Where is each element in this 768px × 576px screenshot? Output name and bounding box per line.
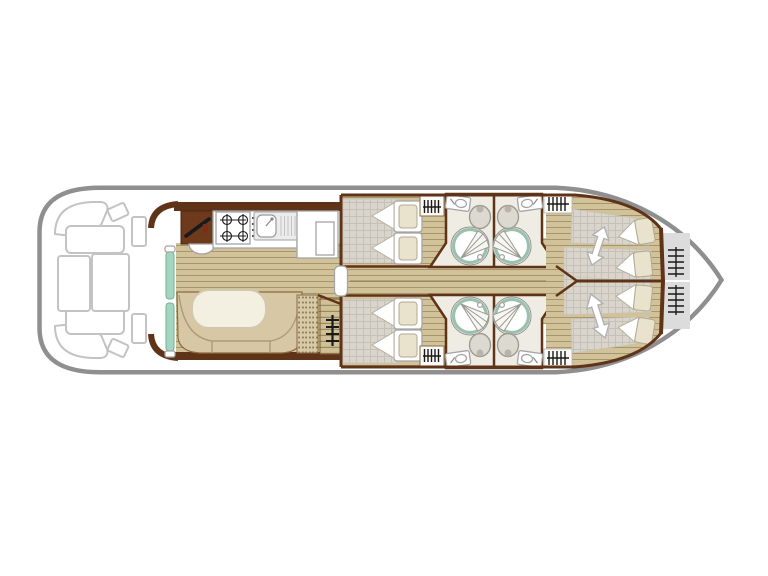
sink-icon [254,212,298,240]
dinette-table [192,290,266,328]
round-shower-icon [493,297,531,335]
helm-knob [203,224,208,233]
pillow [399,205,417,228]
round-shower-icon [451,297,489,335]
sliding-door [166,303,174,351]
pillow [399,334,417,357]
dotted-bench [297,295,318,353]
toilet-icon [498,334,519,357]
deck-bench [66,226,124,253]
bathrooms-forward-pair [430,194,558,267]
round-shower-icon [451,227,489,265]
toilet-icon [470,206,491,229]
corridor-door [335,266,348,296]
fridge-door [316,222,334,255]
door-cap [165,351,175,357]
mid-cabin-port [341,195,446,267]
side-locker [132,217,146,246]
boat-floor-plan [0,0,768,576]
washbasin-icon [517,350,543,367]
side-locker [132,314,146,343]
sun-pad [92,254,129,311]
washbasin-icon [445,350,471,367]
toilet-icon [470,334,491,357]
toilet-icon [498,206,519,229]
sun-pad [58,256,90,311]
bow-bulkhead [661,228,663,334]
washbasin-icon [517,194,543,211]
door-cap [165,246,175,252]
floor-plan-canvas [0,0,768,576]
pillow [399,302,417,325]
round-shower-icon [493,227,531,265]
saloon-top-wall [174,202,342,211]
mid-cabin-starboard [341,295,446,367]
pillow [399,237,417,260]
stove-icon [216,212,254,244]
washbasin-icon [445,194,471,211]
bathrooms-aft-pair [430,295,558,368]
dinette [177,290,302,353]
sliding-door [166,252,174,299]
